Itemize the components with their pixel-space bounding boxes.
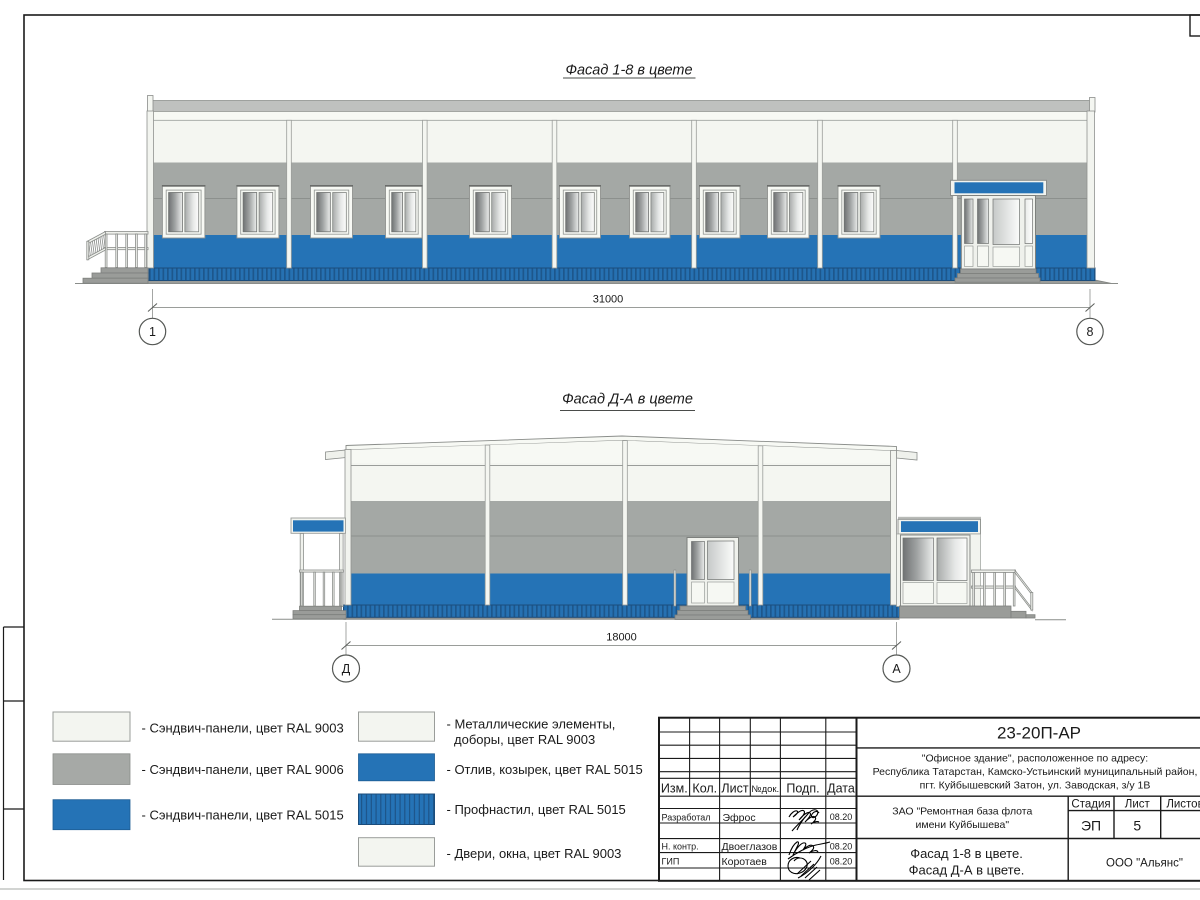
svg-text:Подп.: Подп. xyxy=(786,782,819,796)
svg-text:ЗАО "Ремонтная база флота: ЗАО "Ремонтная база флота xyxy=(892,806,1032,818)
svg-text:Коротаев: Коротаев xyxy=(722,856,768,868)
svg-text:1: 1 xyxy=(149,325,156,339)
svg-text:Дата: Дата xyxy=(827,782,855,796)
svg-text:23-20П-АР: 23-20П-АР xyxy=(997,724,1081,743)
svg-text:31000: 31000 xyxy=(593,294,624,306)
svg-text:Изм.: Изм. xyxy=(661,782,688,796)
svg-text:- Сэндвич-панели, цвет RAL 501: - Сэндвич-панели, цвет RAL 5015 xyxy=(142,808,344,823)
svg-text:08.20: 08.20 xyxy=(830,841,853,851)
svg-text:Лист: Лист xyxy=(1125,799,1151,811)
svg-text:пгт. Куйбышевский Затон, ул. З: пгт. Куйбышевский Затон, ул. Заводская, … xyxy=(920,780,1151,792)
svg-text:"Офисное здание", расположенно: "Офисное здание", расположенное по адрес… xyxy=(922,753,1148,765)
svg-text:08.20: 08.20 xyxy=(830,812,853,822)
svg-text:ЭП: ЭП xyxy=(1081,818,1101,834)
svg-text:Двоеглазов: Двоеглазов xyxy=(722,841,778,853)
svg-text:ООО "Альянс": ООО "Альянс" xyxy=(1106,858,1183,870)
svg-text:5: 5 xyxy=(1133,818,1141,834)
svg-text:имени Куйбышева": имени Куйбышева" xyxy=(916,819,1010,831)
svg-text:Фасад Д-А в цвете: Фасад Д-А в цвете xyxy=(562,392,693,408)
svg-text:Фасад 1-8 в цвете.: Фасад 1-8 в цвете. xyxy=(910,846,1023,861)
svg-text:- Профнастил, цвет RAL 5015: - Профнастил, цвет RAL 5015 xyxy=(447,802,626,817)
svg-text:Республика Татарстан, Камско-У: Республика Татарстан, Камско-Устьинский … xyxy=(873,766,1198,778)
svg-text:ГИП: ГИП xyxy=(662,856,680,866)
svg-text:Н. контр.: Н. контр. xyxy=(662,841,699,851)
svg-text:Листов: Листов xyxy=(1166,799,1200,811)
svg-text:Эфрос: Эфрос xyxy=(723,812,756,824)
svg-text:Фасад 1-8 в цвете: Фасад 1-8 в цвете xyxy=(565,63,692,79)
svg-text:08.20: 08.20 xyxy=(830,856,853,866)
svg-text:Д: Д xyxy=(342,662,351,676)
svg-text:- Отлив, козырек, цвет RAL 501: - Отлив, козырек, цвет RAL 5015 xyxy=(447,762,643,777)
svg-text:№док.: №док. xyxy=(751,784,779,795)
svg-text:Кол.: Кол. xyxy=(692,782,717,796)
svg-text:- Сэндвич-панели, цвет RAL 900: - Сэндвич-панели, цвет RAL 9003 xyxy=(142,721,344,736)
svg-text:Фасад Д-А в цвете.: Фасад Д-А в цвете. xyxy=(909,863,1025,878)
svg-text:- Сэндвич-панели, цвет RAL 900: - Сэндвич-панели, цвет RAL 9006 xyxy=(142,762,344,777)
svg-text:Стадия: Стадия xyxy=(1071,799,1110,811)
svg-text:Лист: Лист xyxy=(721,782,748,796)
svg-text:А: А xyxy=(892,662,901,676)
svg-text:- Металлические элементы,: - Металлические элементы, xyxy=(447,717,616,732)
svg-text:доборы, цвет RAL 9003: доборы, цвет RAL 9003 xyxy=(454,732,595,747)
svg-text:8: 8 xyxy=(1087,325,1094,339)
svg-text:Разработал: Разработал xyxy=(662,812,711,822)
svg-text:- Двери, окна, цвет RAL 9003: - Двери, окна, цвет RAL 9003 xyxy=(447,846,622,861)
svg-text:18000: 18000 xyxy=(606,632,637,644)
